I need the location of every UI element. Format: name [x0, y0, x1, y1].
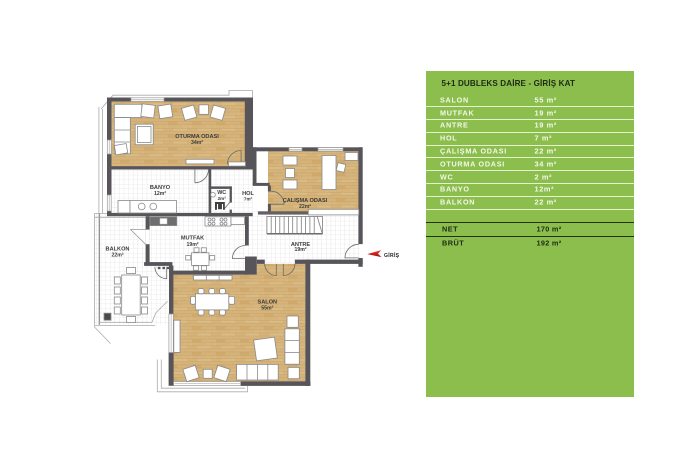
- svg-text:GİRİŞ: GİRİŞ: [384, 252, 400, 259]
- svg-text:19m²: 19m²: [294, 247, 306, 253]
- svg-text:22m²: 22m²: [111, 253, 123, 259]
- svg-text:34m²: 34m²: [191, 140, 203, 146]
- svg-text:55m²: 55m²: [261, 306, 273, 312]
- svg-text:SALON: SALON: [258, 299, 278, 305]
- svg-text:22m²: 22m²: [299, 204, 311, 210]
- svg-text:BANYO: BANYO: [150, 185, 171, 191]
- svg-text:19m²: 19m²: [186, 242, 198, 248]
- svg-text:2m²: 2m²: [218, 196, 227, 201]
- svg-text:MUTFAK: MUTFAK: [181, 236, 204, 242]
- svg-text:7m²: 7m²: [244, 196, 253, 201]
- svg-text:12m²: 12m²: [154, 191, 166, 197]
